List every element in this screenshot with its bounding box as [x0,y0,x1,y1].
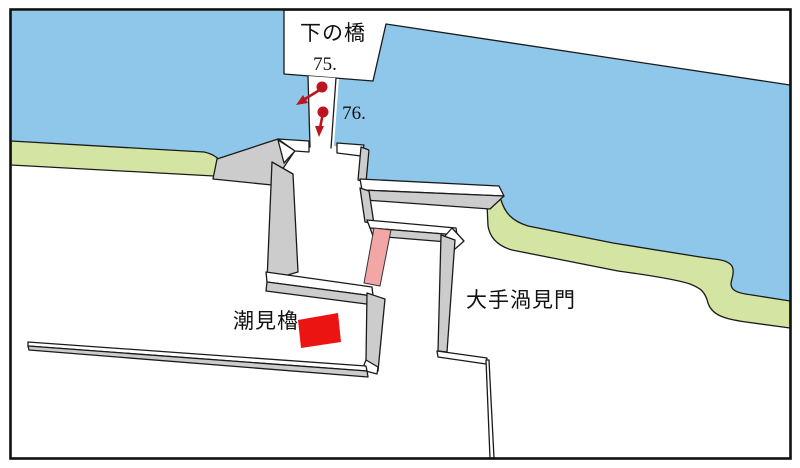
gate-east-wall [438,235,455,352]
thin-wall-southeast [486,360,494,458]
label-ote-uzumi-gate: 大手渦見門 [466,288,576,312]
courtyard-west-wall [267,162,298,281]
label-shimo-no-hashi: 下の橋 [300,21,366,45]
label-shiomi-yagura: 潮見櫓 [233,309,299,333]
gate-east-wall-foot [437,351,487,364]
bastion-east-wall [366,293,385,371]
marker-75-label: 75. [313,54,337,75]
shiomi-yagura-building [298,313,341,348]
gate-highlight-wall [364,228,391,286]
marker-76-dot [318,107,329,118]
moat-water-west [11,11,309,159]
marker-76-label: 76. [342,103,366,124]
map-canvas: 下の橋 75. 76. 潮見櫓 大手渦見門 [0,0,800,468]
bastion-south-wall [28,346,368,377]
castle-map: 下の橋 75. 76. 潮見櫓 大手渦見門 [0,0,800,468]
